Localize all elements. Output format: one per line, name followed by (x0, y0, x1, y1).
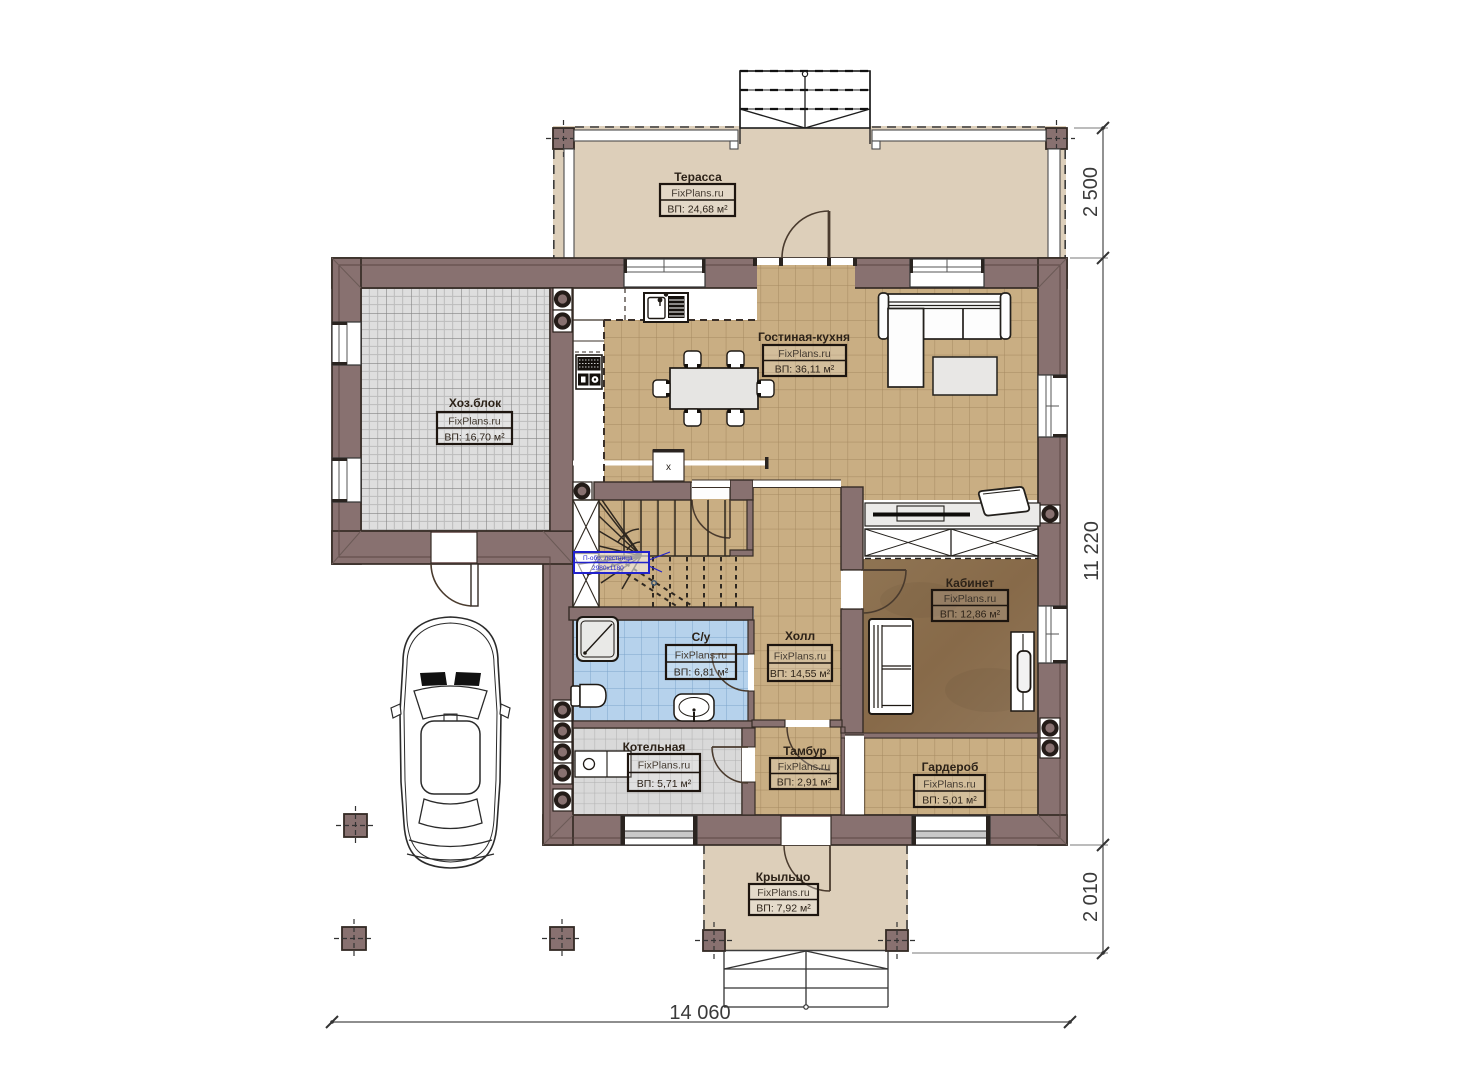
svg-text:2980х1180: 2980х1180 (592, 565, 624, 572)
svg-text:ВП: 36,11 м²: ВП: 36,11 м² (775, 364, 835, 376)
svg-text:Котельная: Котельная (623, 740, 686, 754)
svg-text:11 220: 11 220 (1081, 521, 1103, 581)
svg-text:FixPlans.ru: FixPlans.ru (778, 761, 831, 773)
svg-text:Тамбур: Тамбур (783, 744, 827, 758)
svg-text:FixPlans.ru: FixPlans.ru (778, 348, 831, 360)
svg-text:Гардероб: Гардероб (922, 760, 979, 774)
svg-text:2 500: 2 500 (1080, 167, 1102, 217)
svg-text:FixPlans.ru: FixPlans.ru (675, 650, 728, 662)
svg-text:ВП: 16,70 м²: ВП: 16,70 м² (444, 432, 505, 444)
svg-text:Крыльцо: Крыльцо (756, 870, 811, 884)
svg-text:Холл: Холл (785, 629, 815, 643)
svg-text:FixPlans.ru: FixPlans.ru (923, 779, 976, 791)
svg-text:FixPlans.ru: FixPlans.ru (944, 593, 997, 605)
svg-text:ВП: 5,71 м²: ВП: 5,71 м² (637, 778, 692, 790)
svg-text:FixPlans.ru: FixPlans.ru (774, 651, 827, 663)
svg-text:Кабинет: Кабинет (946, 576, 995, 590)
svg-text:С/у: С/у (692, 630, 711, 644)
svg-text:2 010: 2 010 (1080, 872, 1102, 922)
svg-text:Терасса: Терасса (674, 170, 722, 184)
svg-text:ВП: 7,92 м²: ВП: 7,92 м² (756, 903, 811, 915)
svg-text:ВП: 12,86 м²: ВП: 12,86 м² (940, 609, 1001, 621)
svg-text:FixPlans.ru: FixPlans.ru (671, 188, 724, 200)
svg-text:П-обр. лестница: П-обр. лестница (583, 554, 633, 562)
svg-text:x: x (666, 462, 671, 473)
svg-text:ВП: 24,68 м²: ВП: 24,68 м² (667, 204, 728, 216)
svg-text:FixPlans.ru: FixPlans.ru (638, 760, 691, 772)
svg-text:Гостиная-кухня: Гостиная-кухня (758, 330, 850, 344)
svg-text:ВП: 5,01 м²: ВП: 5,01 м² (922, 795, 977, 807)
svg-text:14 060: 14 060 (669, 1002, 730, 1024)
svg-text:Хоз.блок: Хоз.блок (449, 396, 502, 410)
svg-text:ВП: 6,81 м²: ВП: 6,81 м² (674, 667, 729, 679)
svg-text:ВП: 14,55 м²: ВП: 14,55 м² (770, 668, 831, 680)
svg-text:FixPlans.ru: FixPlans.ru (757, 887, 810, 899)
svg-text:ВП: 2,91 м²: ВП: 2,91 м² (777, 777, 832, 789)
svg-text:FixPlans.ru: FixPlans.ru (448, 416, 501, 428)
